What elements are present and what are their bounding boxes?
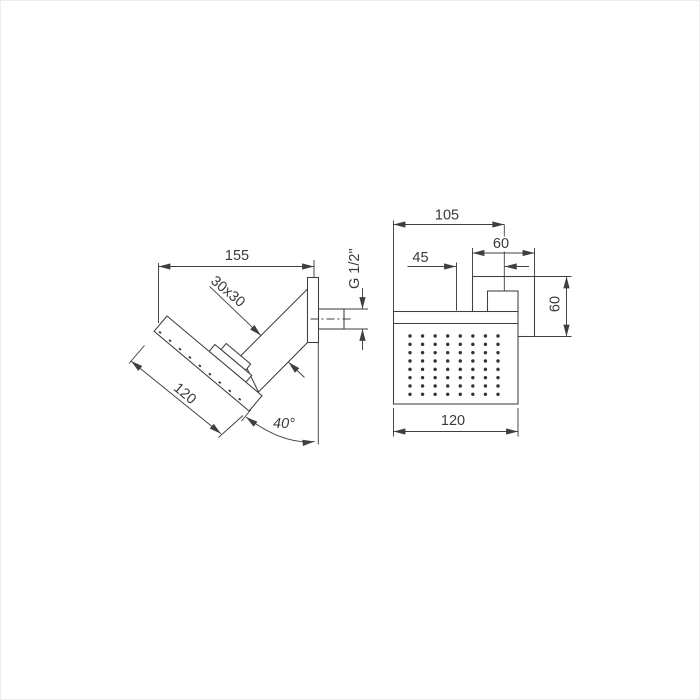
front-view: 105 60 45 60 120 <box>394 208 572 437</box>
nozzle-dot <box>446 351 449 354</box>
nozzle-dot <box>408 359 411 362</box>
nozzle-dot <box>446 368 449 371</box>
nozzle-dot <box>408 384 411 387</box>
side-view: 155 30x30 120 40° G 1/2" <box>129 248 368 445</box>
nozzle-dot <box>421 343 424 346</box>
nozzle-dot <box>471 393 474 396</box>
nozzle-dot <box>471 351 474 354</box>
nozzle-dot <box>459 384 462 387</box>
technical-drawing-canvas: 155 30x30 120 40° G 1/2" <box>0 0 700 700</box>
nozzle-dot <box>496 351 499 354</box>
nozzle-dot <box>496 359 499 362</box>
nozzle-dot <box>421 359 424 362</box>
dim-105-label: 105 <box>435 208 459 224</box>
nozzle-dot <box>408 343 411 346</box>
nozzle-dot <box>433 368 436 371</box>
nozzle-dot <box>433 384 436 387</box>
dim-60-top: 60 <box>473 236 535 277</box>
nozzle-dot <box>484 334 487 337</box>
dim-45-label: 45 <box>412 250 428 266</box>
nozzle-dot <box>459 393 462 396</box>
dim-120-side-label: 120 <box>170 380 199 408</box>
nozzle-dot <box>496 343 499 346</box>
nozzle-dot <box>459 343 462 346</box>
dim-155-label: 155 <box>225 248 249 264</box>
dim-30x30-label: 30x30 <box>207 273 248 311</box>
nozzle-dot <box>484 343 487 346</box>
nozzle-dot <box>446 384 449 387</box>
dim-thread: G 1/2" <box>345 248 369 350</box>
nozzle-dot <box>484 359 487 362</box>
nozzle-dot <box>471 384 474 387</box>
technical-drawing: 155 30x30 120 40° G 1/2" <box>1 1 700 700</box>
nozzle-dot <box>471 368 474 371</box>
dim-40deg-label: 40° <box>273 416 295 432</box>
nozzle-dot <box>484 376 487 379</box>
dim-120-front-label: 120 <box>441 413 465 429</box>
nozzle-dot <box>496 334 499 337</box>
nozzle-dot <box>484 384 487 387</box>
nozzle-dot <box>421 334 424 337</box>
nozzle-dot <box>459 334 462 337</box>
nozzle-dot <box>471 334 474 337</box>
nozzle-dot <box>446 376 449 379</box>
dim-120-front: 120 <box>394 408 519 437</box>
nozzle-dot <box>421 368 424 371</box>
nozzle-dot <box>408 393 411 396</box>
nozzle-dot <box>446 393 449 396</box>
nozzle-dot <box>484 393 487 396</box>
nozzle-dot <box>433 376 436 379</box>
nozzle-dot <box>459 368 462 371</box>
nozzle-dot <box>446 359 449 362</box>
nozzle-dot <box>433 334 436 337</box>
nozzle-dot <box>446 343 449 346</box>
nozzle-dot <box>408 334 411 337</box>
nozzle-dot <box>433 351 436 354</box>
nozzle-dot <box>459 376 462 379</box>
nozzle-dot <box>459 351 462 354</box>
dim-thread-label: G 1/2" <box>347 248 363 289</box>
dim-60-right-label: 60 <box>548 296 564 312</box>
nozzle-dot <box>496 384 499 387</box>
nozzle-dot <box>421 393 424 396</box>
nozzle-dot <box>433 393 436 396</box>
nozzle-dot <box>421 351 424 354</box>
nozzle-dot <box>471 376 474 379</box>
nozzle-dot <box>408 368 411 371</box>
nozzle-dot <box>433 343 436 346</box>
nozzle-dot <box>496 393 499 396</box>
dim-60-right: 60 <box>535 277 572 337</box>
nozzle-dot <box>496 376 499 379</box>
nozzle-dot <box>421 376 424 379</box>
nozzle-dot <box>484 351 487 354</box>
shower-head-front <box>394 312 519 405</box>
nozzle-dot <box>421 384 424 387</box>
dim-60-top-label: 60 <box>493 236 509 252</box>
nozzle-dot <box>446 334 449 337</box>
nozzle-dot <box>408 376 411 379</box>
wall-flange-side <box>308 278 319 343</box>
nozzle-dot <box>459 359 462 362</box>
nozzle-dot <box>471 359 474 362</box>
nozzle-dot <box>471 343 474 346</box>
nozzle-dot <box>433 359 436 362</box>
nozzle-dot <box>408 351 411 354</box>
nozzle-dot <box>484 368 487 371</box>
nozzle-dot <box>496 368 499 371</box>
